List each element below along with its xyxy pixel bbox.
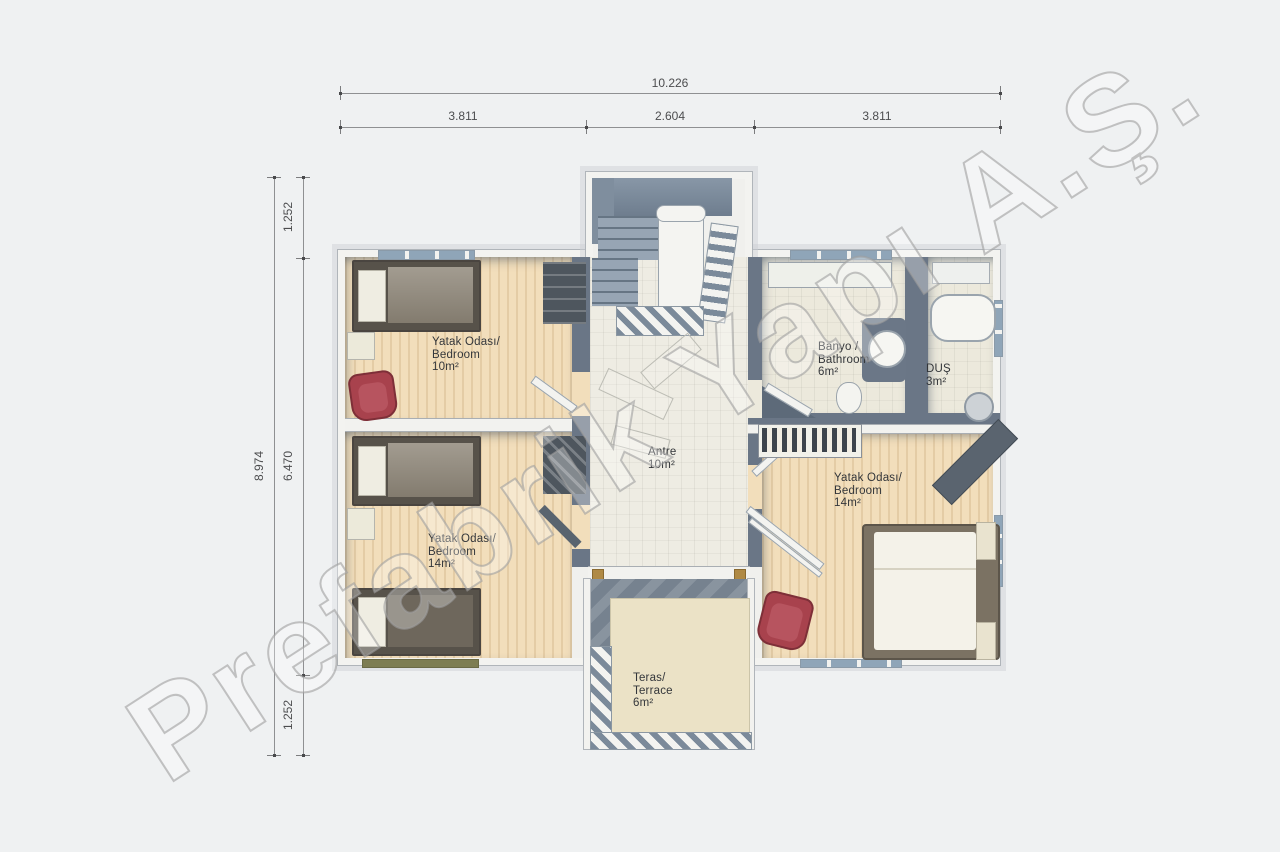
dim-dot [999, 92, 1002, 95]
toilet [836, 382, 862, 414]
books [812, 428, 856, 452]
wardrobe [543, 262, 586, 324]
dim-dot [339, 126, 342, 129]
dim-line-width-segments [340, 127, 1000, 128]
duvet-fold [874, 568, 976, 570]
dim-label-seg-mid: 6.470 [281, 431, 295, 501]
dim-dot [302, 754, 305, 757]
label-line: Bedroom [834, 485, 902, 498]
label-line: Terrace [633, 685, 673, 698]
room-label-bedroom-right: Yatak Odası/ Bedroom 14m² [834, 472, 902, 510]
bed-pillow [358, 446, 386, 496]
dim-label-total-width: 10.226 [635, 76, 705, 90]
dim-dot [273, 176, 276, 179]
red-armchair [347, 369, 399, 423]
dim-dot [339, 92, 342, 95]
double-bed-duvet [874, 532, 976, 650]
window-top-bedroom [378, 250, 475, 260]
floor-plan-canvas: 10.226 3.811 2.604 3.811 8.974 1.252 6.4… [0, 0, 1280, 852]
headboard-cushion [976, 622, 996, 660]
stair-steps-upper [598, 216, 658, 260]
terrace-rail-bottom [590, 732, 752, 750]
label-line: 10m² [432, 361, 500, 374]
dim-label-total-height: 8.974 [252, 431, 266, 501]
double-bed [862, 524, 1000, 660]
window-bottom-bedroom-right [800, 659, 902, 668]
label-line: Teras/ [633, 672, 673, 685]
stair-steps-lower [592, 258, 638, 306]
nightstand [347, 332, 375, 360]
room-label-shower: DUŞ 3m² [926, 363, 951, 388]
label-line: 14m² [834, 497, 902, 510]
stair-rail-curl [656, 205, 706, 222]
bookshelf [758, 424, 862, 458]
dim-line-total-width [340, 93, 1000, 94]
dim-label-seg-top: 1.252 [281, 182, 295, 252]
dim-dot [302, 257, 305, 260]
label-line: Bedroom [432, 349, 500, 362]
label-line: DUŞ [926, 363, 951, 376]
dim-dot [753, 126, 756, 129]
terrace-floor [610, 598, 750, 734]
bed-mattress [388, 267, 473, 323]
label-line: Yatak Odası/ [834, 472, 902, 485]
single-bed [352, 260, 481, 332]
dim-dot [585, 126, 588, 129]
dim-dot [302, 176, 305, 179]
dim-label-seg-mid: 2.604 [635, 109, 705, 123]
dim-dot [273, 754, 276, 757]
headboard-cushion [976, 522, 996, 560]
label-line: 6m² [633, 697, 673, 710]
bed-pillow [358, 270, 386, 322]
room-label-terrace: Teras/ Terrace 6m² [633, 672, 673, 710]
shower-sink [964, 392, 994, 422]
books [762, 428, 806, 452]
dim-label-seg-left: 3.811 [428, 109, 498, 123]
label-line: Yatak Odası/ [432, 336, 500, 349]
label-line: 3m² [926, 376, 951, 389]
dim-label-seg-right: 3.811 [842, 109, 912, 123]
room-label-bedroom-top-left: Yatak Odası/ Bedroom 10m² [432, 336, 500, 374]
